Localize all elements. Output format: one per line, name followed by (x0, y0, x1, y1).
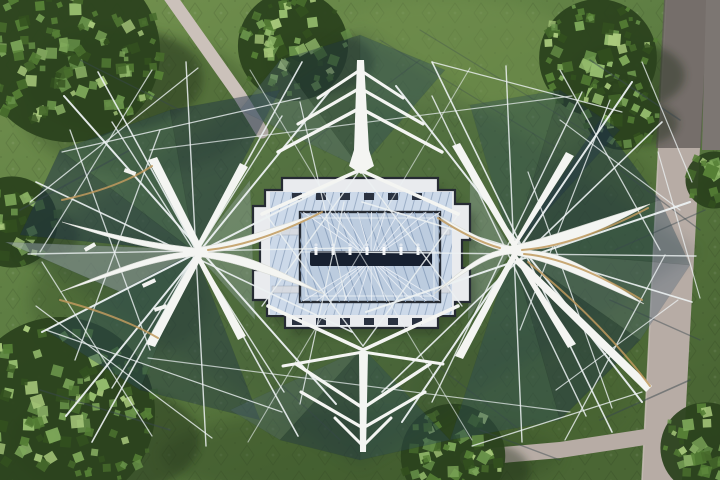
tree-voxel (59, 37, 69, 47)
tree-voxel (0, 44, 7, 52)
tree-voxel (70, 415, 84, 429)
tree-voxel (682, 468, 691, 477)
truss-node-cap (314, 243, 317, 246)
tree-voxel (6, 95, 13, 102)
tree-voxel (682, 419, 695, 432)
tree-voxel (64, 66, 73, 75)
tree-voxel (145, 448, 149, 452)
tree-voxel (574, 21, 584, 31)
tree-voxel (18, 15, 30, 27)
tree-voxel (101, 58, 111, 68)
tree-voxel (544, 39, 552, 47)
tree-voxel (281, 0, 288, 1)
tree-voxel (144, 408, 151, 415)
tree-voxel (0, 22, 7, 33)
tree-voxel (117, 475, 122, 480)
window (388, 318, 398, 325)
tree-voxel (577, 8, 585, 16)
tree-voxel (701, 160, 707, 166)
tree-voxel (497, 468, 501, 472)
tree-voxel (4, 193, 17, 206)
tree-voxel (623, 139, 632, 148)
tree-voxel (481, 465, 489, 473)
window (388, 193, 398, 200)
tree-voxel (0, 250, 10, 261)
tree-voxel (69, 3, 81, 15)
truss-node (366, 247, 369, 255)
truss-node (383, 247, 386, 255)
tree-voxel (601, 22, 614, 35)
tree-voxel (584, 97, 589, 102)
tree-voxel (3, 344, 13, 354)
window (364, 193, 374, 200)
tree-voxel (570, 74, 576, 80)
tree-voxel (60, 436, 72, 448)
tree-voxel (655, 113, 660, 118)
tree-voxel (37, 406, 48, 417)
truss-node-cap (382, 243, 385, 246)
truss-node-cap (348, 243, 351, 246)
scene-svg (0, 0, 720, 480)
tree-voxel (553, 33, 558, 38)
tree-voxel (593, 84, 598, 89)
tree-voxel (279, 9, 288, 18)
tree-voxel (103, 464, 111, 472)
tree-voxel (423, 455, 431, 463)
tree-voxel (21, 378, 28, 385)
truss-node-cap (399, 243, 402, 246)
tree-voxel (57, 80, 65, 88)
tree-voxel (629, 17, 633, 21)
tree-voxel (703, 419, 712, 428)
tree-voxel (40, 66, 46, 72)
tree-voxel (149, 63, 157, 71)
tree-voxel (75, 66, 88, 79)
tree-voxel (35, 1, 45, 11)
tree-voxel (91, 449, 99, 457)
tree-voxel (447, 466, 458, 477)
tree-voxel (264, 48, 274, 58)
tree-voxel (551, 24, 558, 31)
window (364, 318, 374, 325)
tree-voxel (119, 51, 125, 57)
tree-voxel (627, 116, 635, 124)
tree-voxel (690, 188, 697, 195)
aerial-render-image (0, 0, 720, 480)
tree-voxel (493, 458, 504, 469)
tree-voxel (124, 57, 129, 62)
tree-voxel (13, 50, 25, 62)
tree-voxel (4, 219, 18, 233)
tree-voxel (11, 209, 18, 216)
tree-voxel (89, 81, 98, 90)
truss-node (400, 247, 403, 255)
tree-voxel (307, 17, 318, 28)
tree-voxel (28, 42, 35, 49)
tree-voxel (116, 63, 127, 74)
tree-voxel (69, 386, 80, 397)
tree-voxel (667, 419, 671, 423)
tree-voxel (255, 34, 265, 44)
tree-voxel (155, 52, 165, 62)
tree-voxel (39, 106, 49, 116)
tree-voxel (562, 61, 574, 73)
tree-voxel (51, 17, 58, 24)
tree-voxel (77, 378, 83, 384)
tree-voxel (46, 47, 57, 58)
